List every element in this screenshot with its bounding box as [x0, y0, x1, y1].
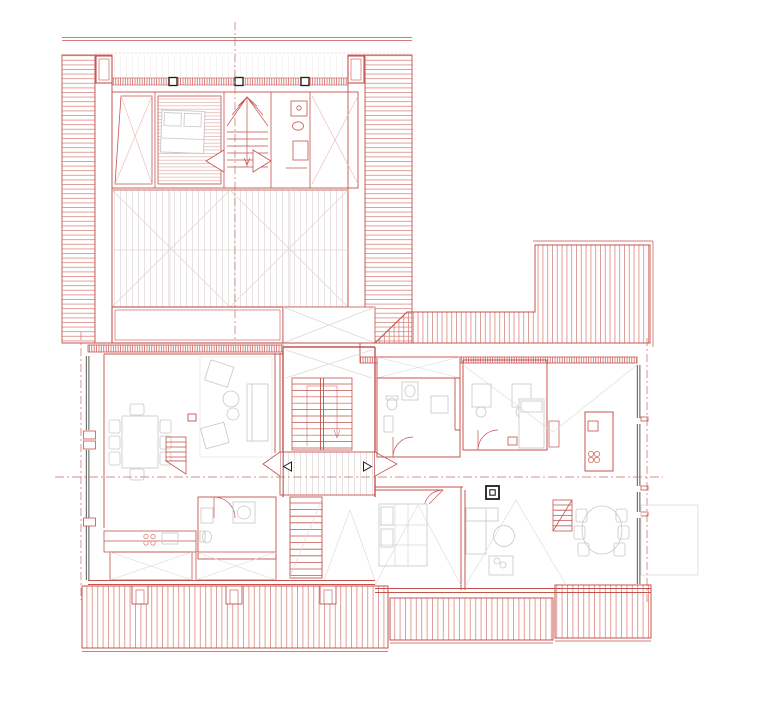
cooktop-right: [588, 451, 599, 462]
glazing-left-facade: [86, 356, 89, 580]
terrace-roofs: [82, 585, 651, 652]
upper-void: [112, 190, 348, 307]
kitchen-island-right: [463, 365, 637, 471]
upper-right-wall-band: [348, 55, 365, 343]
bedroom-door-leaf: [549, 421, 559, 447]
roof-hatch-right-strip: [365, 55, 412, 343]
core-landing-x: [286, 350, 372, 378]
interior-stair-left: [166, 437, 186, 474]
upper-block: [62, 22, 412, 343]
stair-void-top: [283, 307, 375, 343]
gallery-bathroom: [286, 101, 308, 168]
cooktop-left: [144, 534, 155, 545]
corridor-door-left: [263, 452, 280, 476]
bathroom-right-door-arc: [393, 437, 413, 457]
kitchen-left: [104, 531, 196, 552]
upper-block-top-eave-lines: [62, 38, 412, 41]
loft-stair: [553, 500, 572, 531]
chimney-left: [96, 56, 112, 83]
dining-set: [109, 404, 171, 480]
corridor: [280, 452, 375, 495]
terrace-middle-hatch: [390, 598, 553, 640]
apartment-right-lower: [375, 486, 629, 590]
apartment-left: [104, 353, 283, 580]
main-block: [84, 343, 652, 593]
glazing-right-facade: [637, 365, 640, 584]
bedroom-lower: [375, 487, 465, 590]
eave-faint-strip: [112, 56, 348, 78]
main-stair: [292, 378, 352, 450]
core-side-faint-lines: [324, 510, 375, 580]
glazing-left-piers: [84, 431, 96, 526]
bathroom-left: [198, 497, 276, 559]
living-room-walls: [104, 353, 283, 528]
gallery-bed: [161, 110, 205, 153]
bathroom-left-door-arc: [214, 497, 235, 518]
kitchen-ceiling-lines: [463, 365, 637, 432]
column-marker-red: [188, 414, 196, 421]
balcony-faint-outline: [641, 505, 698, 575]
floor-plan-drawing: [0, 0, 780, 705]
roof-hatch-left-strip: [62, 55, 95, 343]
floor-plan-canvas: [0, 0, 780, 705]
closet-strip: [377, 357, 460, 378]
apartment-right-upper: [377, 357, 637, 471]
right-wing-hatch: [375, 245, 650, 343]
lower-stair: [290, 497, 322, 578]
void-rooms-bottom-left: [110, 552, 276, 580]
upper-insulated-wall-band: [112, 78, 348, 85]
upper-left-wall-band: [95, 55, 112, 343]
bedroom-door-arc: [478, 430, 498, 450]
upper-bottom-band: [112, 307, 283, 343]
chimney-right: [348, 56, 364, 83]
lounge-set: [200, 357, 272, 457]
bedroom-column-red: [508, 437, 517, 445]
bathroom-right: [377, 378, 460, 457]
wall-bottom-left: [88, 581, 375, 585]
gallery-storage-room: [115, 96, 152, 184]
bedroom-upper-right: [463, 360, 559, 450]
structural-marker-black: [486, 486, 499, 499]
wall-top-left-band: [88, 345, 283, 352]
corridor-door-right: [375, 452, 397, 476]
right-wing-roof: [375, 241, 653, 347]
gallery-bedroom: [158, 96, 221, 184]
